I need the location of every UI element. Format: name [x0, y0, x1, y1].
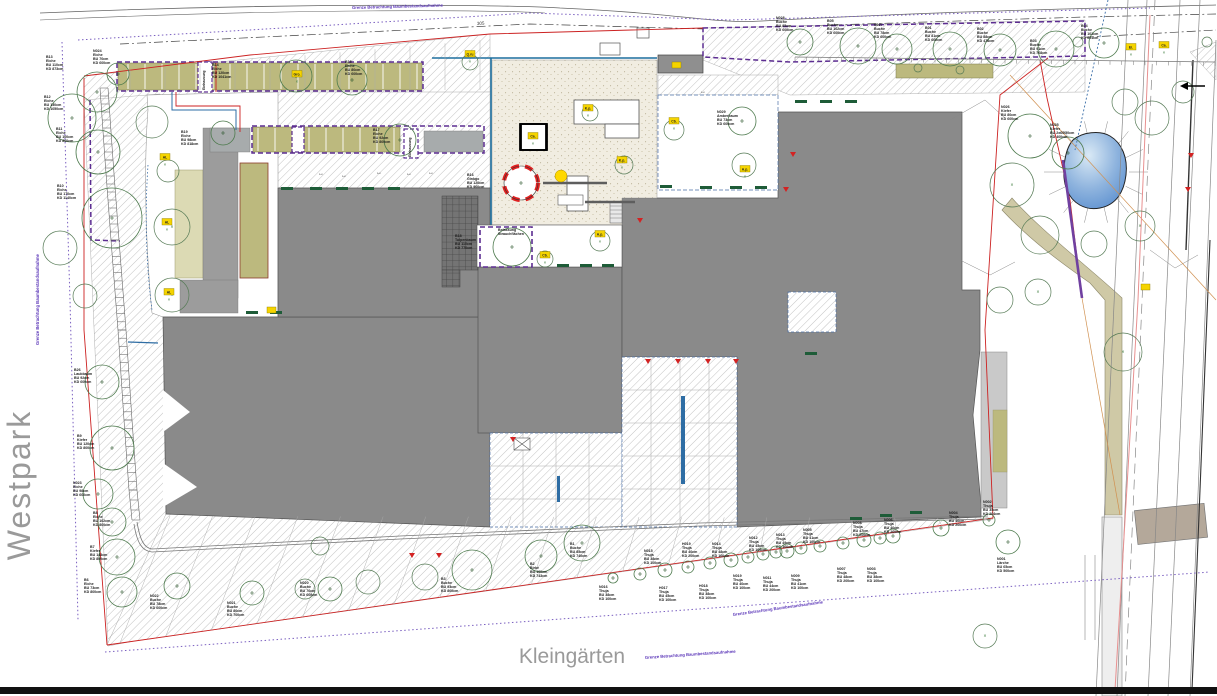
- yellow-square: [267, 307, 276, 313]
- tree-label-N003: N003ThujaBU 38cmKD 100cm: [867, 567, 884, 583]
- green-bar: [660, 185, 672, 188]
- yellow-square: [1141, 284, 1150, 290]
- svg-text:×: ×: [171, 225, 174, 231]
- species-marker-Ei: Ei.×: [1126, 44, 1136, 58]
- svg-text:×: ×: [1037, 290, 1040, 296]
- dim-arrow: ↔: [341, 173, 347, 179]
- green-bar: [281, 187, 293, 190]
- svg-text:×: ×: [469, 59, 472, 64]
- yellow-square: [672, 62, 681, 68]
- svg-text:×: ×: [168, 297, 171, 302]
- play-structure-1: [574, 100, 639, 124]
- tree-N019: N019ThujaBU 40cmKD 100cm: [733, 551, 754, 590]
- species-marker-Ca: Ca.×: [1159, 42, 1169, 56]
- tree-label-H017: H017ThujaBU 45cmKD 100cm: [659, 586, 676, 602]
- tree-N001: N001LärcheBU 65cmKD 500cm: [996, 530, 1020, 573]
- tree-label-B11: B11EicheBU 100cmKD 800cm: [56, 127, 73, 143]
- section-bar-2: [681, 396, 685, 484]
- svg-text:×: ×: [621, 165, 624, 170]
- striped-block: [610, 202, 622, 223]
- tree-label-N024: N024EicheBU 70cmKD 600cm: [93, 49, 110, 65]
- tree-circle: [987, 287, 1013, 313]
- planting-row-ne: [896, 64, 993, 78]
- tree-circle: ×: [1025, 279, 1051, 305]
- tree-label-N028: N028BucheBU 95cmKD 600cm: [776, 16, 793, 32]
- green-bar: [795, 100, 807, 103]
- svg-text:×: ×: [1122, 350, 1125, 356]
- pale-planting-strip: [175, 170, 203, 278]
- green-bar: [805, 352, 817, 355]
- tree-circle: [1112, 89, 1138, 115]
- tree-label-H018: H018ThujaBU 38cmKD 100cm: [699, 584, 716, 600]
- boundary-note-3: Grenze Betrachtung Baumbestandsaufnahme: [732, 599, 823, 617]
- svg-text:K.p.: K.p.: [619, 158, 625, 162]
- green-bar: [755, 186, 767, 189]
- svg-text:×: ×: [1139, 224, 1142, 230]
- building-center: [478, 267, 622, 433]
- row2-gray-right: [424, 131, 483, 152]
- tree-N007: N007ThujaBU 48cmKD 200cm: [837, 537, 854, 583]
- svg-text:×: ×: [166, 227, 169, 232]
- dim-arrow: ↔: [406, 171, 412, 177]
- kleingaerten-label: Kleingärten: [519, 645, 625, 668]
- beige-path: [1002, 198, 1122, 515]
- green-bar: [850, 517, 862, 520]
- green-bar: [700, 186, 712, 189]
- dim-arrow: ↔: [428, 170, 434, 176]
- svg-text:×: ×: [1130, 52, 1133, 57]
- tree-circle: ×: [973, 624, 997, 648]
- page-bottom-bar: [0, 687, 1217, 694]
- tree-label-N009: N009ThujaBU 41cmKD 100cm: [791, 574, 808, 590]
- boundary-note-1: Grenze Betrachtung Baumbestandsaufnahme: [352, 3, 444, 10]
- svg-text:×: ×: [587, 113, 590, 118]
- building-left-slab: [163, 317, 490, 527]
- green-bar: [880, 514, 892, 517]
- dim-arrow: ↔: [318, 171, 324, 177]
- green-bar: [310, 187, 322, 190]
- einhausung-label-1: Einhausung: [202, 71, 206, 90]
- dim-arrow: ↔: [376, 170, 382, 176]
- tree-circle: ×: [1125, 211, 1155, 241]
- svg-text:×: ×: [673, 126, 676, 131]
- green-bar: [730, 186, 742, 189]
- boundary-note-4: Grenze Betrachtung Baumbestandsaufnahme: [35, 253, 40, 345]
- crossed-box: [514, 438, 530, 450]
- tree-circle: [1135, 101, 1169, 135]
- tree-circle: [1081, 231, 1107, 257]
- section-bar-1: [557, 476, 560, 502]
- tree-label-N019: N019ThujaBU 40cmKD 100cm: [733, 574, 750, 590]
- tree-label-N011: N011ThujaBU 44cmKD 200cm: [763, 576, 780, 592]
- row2-gray-left: [210, 128, 250, 152]
- gap-box: [292, 127, 304, 152]
- tree-circle: [43, 231, 77, 265]
- tree-circle: [1172, 81, 1194, 103]
- tree-H017: H017ThujaBU 45cmKD 100cm: [658, 563, 676, 602]
- play-structure-4: [558, 195, 583, 205]
- svg-text:AL: AL: [165, 220, 170, 224]
- svg-text:×: ×: [984, 634, 987, 640]
- purple-dotted-left: [62, 42, 78, 620]
- svg-text:Cb.: Cb.: [542, 253, 548, 257]
- boundary-note-2: Grenze Betrachtung Baumbestandsaufnahme: [645, 649, 737, 660]
- station-label: 305: [477, 21, 485, 26]
- tree-label-N016: N016ThujaBU 38cmKD 100cm: [599, 585, 616, 601]
- svg-text:Ca.: Ca.: [1161, 43, 1166, 47]
- green-bar: [362, 187, 374, 190]
- tree-N011: N011ThujaBU 44cmKD 200cm: [763, 546, 782, 592]
- east-planting: [993, 410, 1007, 472]
- tree-label-N007: N007ThujaBU 48cmKD 200cm: [837, 567, 854, 583]
- play-structure-3: [567, 176, 588, 211]
- red-marker: [1185, 187, 1191, 192]
- site-plan-page: ↔↔↔↔↔↔ ××××××× B13EicheBU 110cmKD 873cmN…: [0, 0, 1217, 696]
- green-bar: [246, 311, 258, 314]
- svg-text:Gro.: Gro.: [294, 72, 301, 76]
- tree-B04: B04BucheBU 101cmKD 601cm: [1081, 24, 1119, 58]
- road-band: [1102, 517, 1122, 696]
- green-bar: [388, 187, 400, 190]
- svg-text:Cb.: Cb.: [671, 119, 677, 123]
- green-bar: [845, 100, 857, 103]
- svg-text:×: ×: [164, 162, 167, 167]
- tree-label-B05: B05BucheBU 102cmKD 600cm: [827, 19, 844, 35]
- tree-label-B6: B6EicheBU 73cmKD 800cm: [84, 578, 101, 594]
- svg-text:×: ×: [532, 141, 535, 146]
- play-structure-2: [605, 124, 639, 138]
- svg-text:AL: AL: [163, 155, 168, 159]
- planting-strip: [240, 163, 268, 278]
- svg-text:×: ×: [1163, 50, 1166, 55]
- green-bar: [820, 100, 832, 103]
- svg-text:K.p.: K.p.: [585, 106, 591, 110]
- tree-N003: N003ThujaBU 38cmKD 100cm: [867, 532, 886, 583]
- road-stub: [1085, 555, 1095, 640]
- gray-walkway: [203, 128, 238, 298]
- svg-text:×: ×: [599, 239, 602, 244]
- tree-label-B13: B13EicheBU 110cmKD 873cm: [46, 55, 63, 71]
- svg-text:AL: AL: [167, 290, 172, 294]
- tree-label-B04: B04BucheBU 101cmKD 601cm: [1081, 24, 1098, 40]
- einhausung-label-2: Einhausung: [408, 138, 412, 157]
- svg-text:A.p.: A.p.: [597, 232, 603, 236]
- green-bar: [557, 264, 569, 267]
- dim-arrow: ↔: [700, 89, 706, 95]
- svg-text:×: ×: [544, 260, 547, 265]
- svg-text:Ca.: Ca.: [530, 134, 535, 138]
- svg-text:Ei.: Ei.: [1129, 45, 1133, 49]
- tree-H018: H018ThujaBU 38cmKD 100cm: [699, 557, 716, 600]
- green-bar: [602, 264, 614, 267]
- svg-text:×: ×: [744, 174, 747, 179]
- svg-text:Q.ru: Q.ru: [467, 52, 474, 56]
- tree-label-N025: N025KieferBU 2x60/50cmKD 400cm: [1050, 123, 1074, 139]
- westpark-label: Westpark: [1, 410, 37, 561]
- site-plan-drawing: ↔↔↔↔↔↔ ××××××× B13EicheBU 110cmKD 873cmN…: [0, 0, 1217, 696]
- svg-text:A.p.: A.p.: [742, 167, 748, 171]
- tree-N016: N016ThujaBU 38cmKD 100cm: [599, 573, 618, 601]
- green-bar: [580, 264, 592, 267]
- tree-label-N001: N001LärcheBU 65cmKD 500cm: [997, 557, 1014, 573]
- green-bar: [910, 511, 922, 514]
- svg-text:×: ×: [1011, 183, 1014, 189]
- green-bar: [336, 187, 348, 190]
- tree-label-N026: N026KieferBU 80cmKD 600cm: [1001, 105, 1018, 121]
- yellow-circle-element: [555, 170, 567, 182]
- svg-text:×: ×: [296, 79, 299, 84]
- small-structure-1: [600, 43, 620, 55]
